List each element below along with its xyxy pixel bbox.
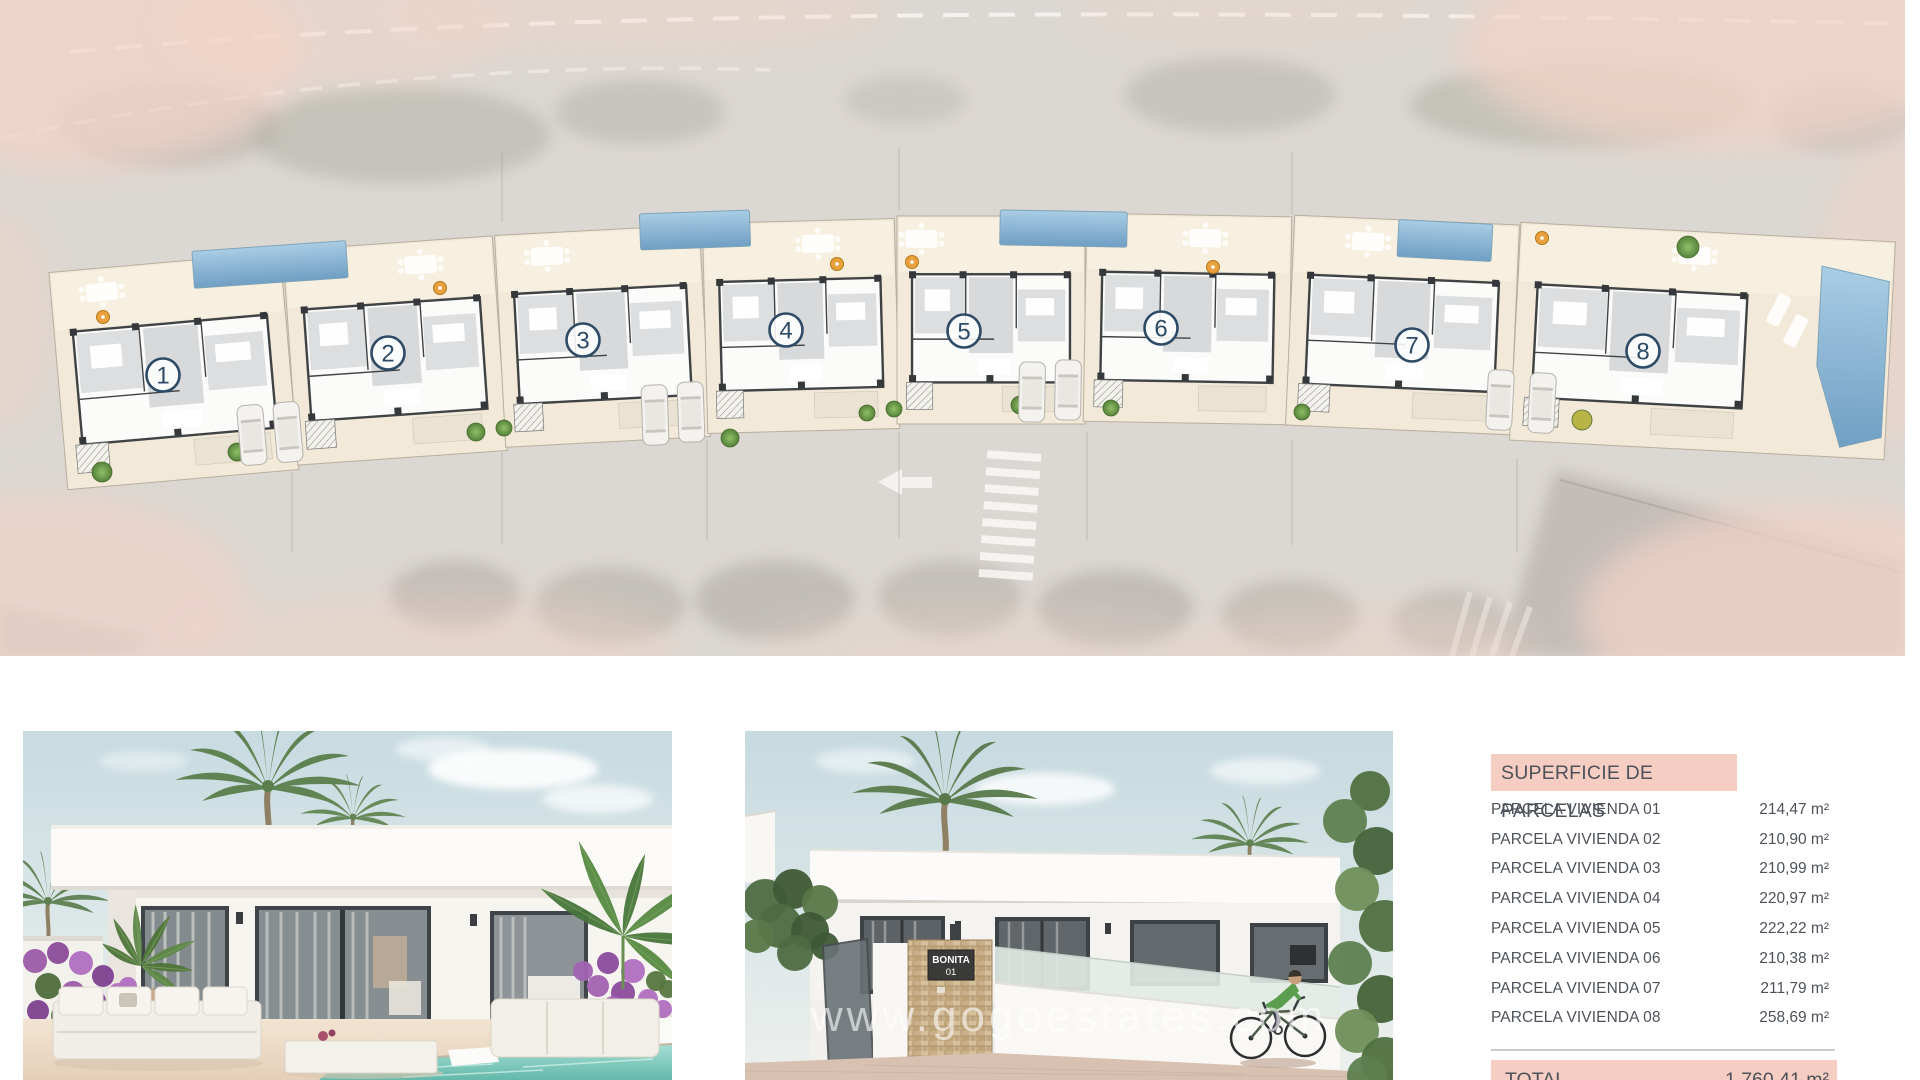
parcel-label: PARCELA VIVIENDA 04 <box>1491 890 1661 908</box>
parcel-area: 258,69 m² <box>1759 1009 1829 1027</box>
parked-car <box>1485 369 1514 430</box>
parked-car <box>641 385 669 446</box>
wall-lamp <box>236 912 243 924</box>
stairs <box>906 382 932 409</box>
parcel-label: PARCELA VIVIENDA 01 <box>1491 801 1661 819</box>
plan-unit-8 <box>1510 222 1896 459</box>
table-title: SUPERFICIE DE PARCELAS <box>1491 754 1737 791</box>
tree <box>886 401 902 417</box>
total-value: 1.760,41 m² <box>1725 1069 1829 1080</box>
pool <box>1397 220 1493 262</box>
tree <box>859 405 875 421</box>
tv-screen <box>1290 945 1316 965</box>
site-plan-drawing: 12345678 <box>0 0 1905 656</box>
svg-text:6: 6 <box>1154 316 1167 343</box>
svg-text:8: 8 <box>1636 339 1649 366</box>
unit-number-badge-1: 1 <box>147 359 180 392</box>
photo-watermark: www.gogoestates.com <box>810 992 1327 1041</box>
parcel-area: 220,97 m² <box>1759 890 1829 908</box>
stairs <box>716 391 744 419</box>
svg-text:5: 5 <box>957 319 970 346</box>
parked-car <box>1054 360 1081 420</box>
parked-car <box>677 382 705 443</box>
terrace-table <box>1351 232 1384 251</box>
parcel-row-5: PARCELA VIVIENDA 05222,22 m² <box>1491 914 1837 944</box>
terrace-table <box>531 246 564 266</box>
tree <box>467 423 485 441</box>
pillar-lamp <box>950 924 961 940</box>
parcel-label: PARCELA VIVIENDA 03 <box>1491 860 1661 878</box>
villa-photo-1-scene <box>23 731 672 1080</box>
parcel-row-8: PARCELA VIVIENDA 08258,69 m² <box>1491 1004 1837 1034</box>
svg-text:7: 7 <box>1405 333 1418 360</box>
parked-car <box>1527 372 1556 433</box>
parcel-label: PARCELA VIVIENDA 07 <box>1491 980 1661 998</box>
parcel-area: 210,38 m² <box>1759 950 1829 968</box>
tree <box>496 420 512 436</box>
parcel-label: PARCELA VIVIENDA 02 <box>1491 831 1661 849</box>
unit-number-badge-4: 4 <box>770 314 803 347</box>
parcel-row-7: PARCELA VIVIENDA 07211,79 m² <box>1491 974 1837 1004</box>
flower-vase <box>318 1031 328 1041</box>
terrace-table <box>802 234 834 253</box>
parcel-area: 211,79 m² <box>1760 980 1829 998</box>
terrace-table <box>85 282 118 303</box>
pool <box>639 210 750 250</box>
driveway <box>1412 393 1487 421</box>
parcel-row-2: PARCELA VIVIENDA 02210,90 m² <box>1491 825 1837 855</box>
site-plan: 12345678 <box>0 0 1905 656</box>
driveway <box>1650 408 1734 438</box>
driveway <box>1198 386 1266 412</box>
unit-number-badge-6: 6 <box>1145 312 1178 345</box>
tree <box>1294 404 1310 420</box>
stairs <box>305 419 336 449</box>
total-label: TOTAL <box>1505 1069 1566 1080</box>
parcel-label: PARCELA VIVIENDA 05 <box>1491 920 1661 938</box>
villa-photo-1 <box>23 731 672 1080</box>
tree <box>721 429 739 447</box>
parked-car <box>272 401 303 463</box>
svg-text:4: 4 <box>779 318 792 345</box>
parcel-area: 210,90 m² <box>1759 831 1829 849</box>
villa-photo-2-scene: BONITA 01 w <box>745 731 1393 1080</box>
unit-number-badge-7: 7 <box>1396 329 1429 362</box>
brochure-page: 12345678 <box>0 0 1920 1080</box>
unit-number-badge-5: 5 <box>948 315 981 348</box>
pillow <box>119 993 137 1007</box>
villa-photo-2: BONITA 01 w <box>745 731 1393 1080</box>
parcel-area: 210,99 m² <box>1759 860 1829 878</box>
unit-number-badge-2: 2 <box>372 337 405 370</box>
unit-number-badge-8: 8 <box>1627 335 1660 368</box>
parcel-row-4: PARCELA VIVIENDA 04220,97 m² <box>1491 884 1837 914</box>
terrace-table <box>404 255 437 275</box>
parcel-area: 222,22 m² <box>1759 920 1829 938</box>
parcel-label: PARCELA VIVIENDA 08 <box>1491 1009 1661 1027</box>
entrance-sign-number: 01 <box>946 967 957 978</box>
parked-car <box>236 404 267 466</box>
tree <box>1572 410 1592 430</box>
table-rows: PARCELA VIVIENDA 01214,47 m²PARCELA VIVI… <box>1491 795 1837 1033</box>
svg-text:1: 1 <box>156 363 169 390</box>
wall-lamp <box>1105 923 1111 934</box>
parcel-area: 214,47 m² <box>1759 801 1829 819</box>
terrace-table <box>1189 229 1221 248</box>
svg-text:2: 2 <box>381 341 394 368</box>
wall-lamp <box>470 914 477 926</box>
parcel-row-6: PARCELA VIVIENDA 06210,38 m² <box>1491 944 1837 974</box>
entrance-sign-name: BONITA <box>932 955 970 966</box>
pool <box>1000 210 1128 247</box>
parcel-label: PARCELA VIVIENDA 06 <box>1491 950 1661 968</box>
svg-text:3: 3 <box>576 328 589 355</box>
parked-car <box>1018 362 1045 422</box>
neighbor-roof <box>745 811 775 883</box>
tree <box>1677 236 1699 258</box>
tree <box>1103 400 1119 416</box>
tree <box>92 462 112 482</box>
table-total-row: TOTAL 1.760,41 m² <box>1491 1060 1837 1080</box>
unit-number-badge-3: 3 <box>567 324 600 357</box>
parcel-table: SUPERFICIE DE PARCELAS PARCELA VIVIENDA … <box>1491 754 1837 1080</box>
parcel-row-3: PARCELA VIVIENDA 03210,99 m² <box>1491 855 1837 885</box>
table-divider <box>1491 1049 1835 1051</box>
terrace-table <box>905 230 937 248</box>
stairs <box>514 403 544 432</box>
